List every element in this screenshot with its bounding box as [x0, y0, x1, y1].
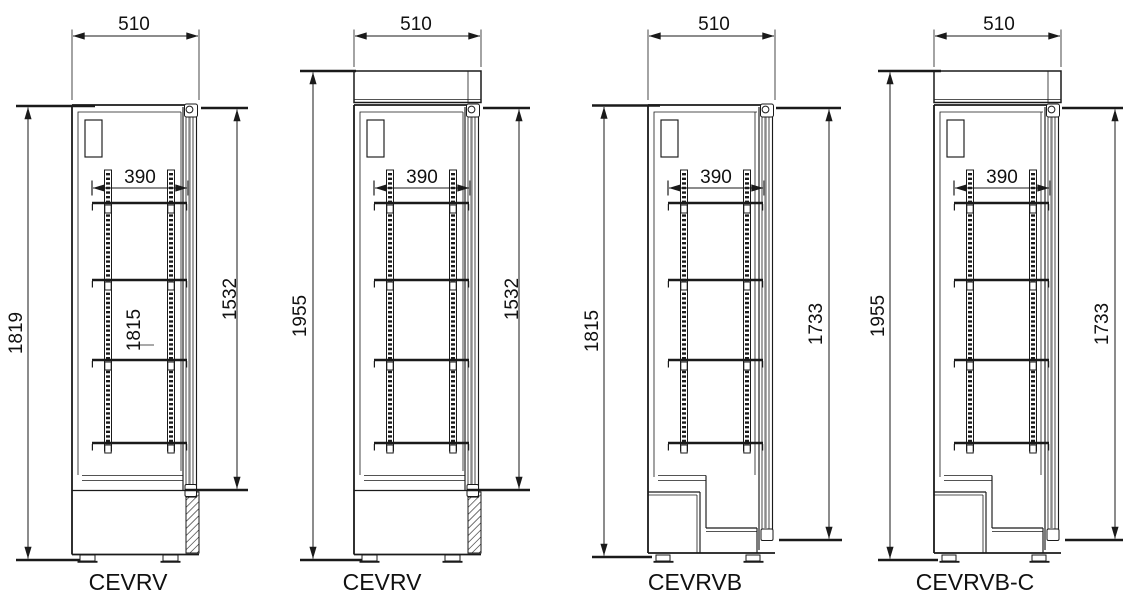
dimension-height-left: 1955	[868, 71, 941, 560]
canopy-header	[934, 71, 1061, 103]
figure-cevrv-1: 510 1819 1532 1815 390 CEVRV	[6, 14, 248, 595]
overall-height-value: 1815	[582, 310, 603, 352]
overall-height-value: 1955	[290, 295, 311, 337]
model-label: CEVRV	[343, 569, 422, 595]
glass-door	[185, 104, 198, 497]
glass-door	[1047, 104, 1060, 541]
dimension-width: 510	[354, 14, 481, 67]
overall-height-value: 1819	[6, 312, 27, 354]
door-height-value: 1733	[806, 303, 827, 345]
figure-cevrv-2: 510 1955 1532 390 CEVRV	[290, 14, 530, 595]
shelf-depth-value: 390	[124, 167, 156, 188]
dimension-height-right: 1733	[776, 108, 842, 540]
dimension-width: 510	[934, 14, 1061, 67]
glass-door	[761, 104, 774, 541]
shelf-depth-value: 390	[406, 167, 438, 188]
shelf-depth-value: 390	[986, 167, 1018, 188]
shelf-depth-value: 390	[700, 167, 732, 188]
width-dim-value: 510	[118, 14, 150, 35]
figure-cevrvb-c: 510 1955 1733 390 CEVRVB-C	[868, 14, 1123, 595]
dimension-height-right: 1733	[1062, 108, 1123, 540]
dimension-height-right: 1532	[185, 108, 248, 490]
model-label: CEVRVB-C	[916, 569, 1034, 595]
dimension-interior: 1815	[124, 309, 154, 351]
figure-cevrvb: 510 1815 1733 390 CEVRVB	[582, 14, 842, 595]
door-height-value: 1733	[1092, 303, 1113, 345]
cabinet-drawings-svg: 510 1819 1532 1815 390 CEVRV	[0, 0, 1125, 605]
glass-door	[467, 104, 480, 497]
overall-height-value: 1955	[868, 295, 889, 337]
canopy-header	[354, 71, 481, 103]
width-dim-value: 510	[698, 14, 730, 35]
door-height-value: 1532	[502, 278, 523, 320]
model-label: CEVRV	[89, 569, 168, 595]
technical-drawing-sheet: 510 1819 1532 1815 390 CEVRV	[0, 0, 1125, 605]
width-dim-value: 510	[400, 14, 432, 35]
dimension-width: 510	[72, 14, 199, 100]
dimension-height-right: 1532	[467, 108, 530, 490]
dimension-width: 510	[648, 14, 775, 100]
model-label: CEVRVB	[648, 569, 742, 595]
width-dim-value: 510	[983, 14, 1015, 35]
dimension-height-left: 1819	[6, 106, 95, 560]
dimension-height-left: 1955	[290, 71, 362, 560]
door-height-value: 1532	[220, 278, 241, 320]
